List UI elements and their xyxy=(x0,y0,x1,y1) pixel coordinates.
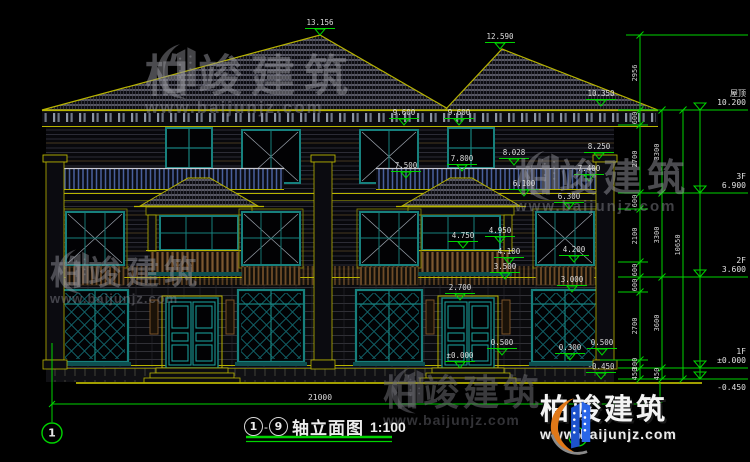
level-annotation: 8.250 xyxy=(588,142,611,151)
level-annotation: 9.600 xyxy=(393,108,416,117)
drawing-title: 1 - 9 轴立面图 1:100 xyxy=(244,414,406,439)
level-annotation: 4.750 xyxy=(452,231,475,240)
dimension-chain-value: 2700 xyxy=(631,151,639,168)
level-annotation: ±0.000 xyxy=(446,351,473,360)
level-annotation: 8.028 xyxy=(503,148,526,157)
level-annotation: 3.000 xyxy=(561,275,584,284)
dimension-chain-value: 2700 xyxy=(631,318,639,335)
dimension-chain-value: 600 xyxy=(631,195,639,208)
level-annotation: -0.450 xyxy=(587,362,614,371)
cad-elevation-drawing: 柏竣建筑 www.baijunjz.com 柏竣建筑 www.baijunjz.… xyxy=(0,0,750,462)
level-annotation: 0.300 xyxy=(559,343,582,352)
storey-level-label: 2F3.600 xyxy=(722,257,746,274)
overall-width-dimension: 21000 xyxy=(308,393,332,402)
dimension-chain-value: 600 xyxy=(631,263,639,276)
hip-roof xyxy=(42,35,658,110)
level-annotation: 13.156 xyxy=(306,18,333,27)
dimension-chain-value: 2956 xyxy=(631,64,639,81)
level-annotation: 0.500 xyxy=(591,338,614,347)
level-annotation: 3.500 xyxy=(494,262,517,271)
dimension-chain-value: 2100 xyxy=(631,227,639,244)
storey-level-label: 3F6.900 xyxy=(722,173,746,190)
title-axis-right-circle: 9 xyxy=(269,417,288,436)
title-scale: 1:100 xyxy=(370,419,406,435)
storey-level-label: 屋顶10.200 xyxy=(717,90,746,107)
eave-cornice xyxy=(42,110,658,127)
title-name: 轴立面图 xyxy=(292,414,364,439)
level-annotation: 6.300 xyxy=(558,192,581,201)
dimension-chain-value: 3600 xyxy=(653,314,661,331)
dimension-chain-value: 3300 xyxy=(653,143,661,160)
dimension-chain-value: 450 xyxy=(631,367,639,380)
storey-level-label: 1F±0.000 xyxy=(717,348,746,365)
level-annotation: 4.100 xyxy=(498,247,521,256)
level-annotation: 2.700 xyxy=(449,283,472,292)
storey-level-label: -0.450 xyxy=(717,384,746,393)
level-annotation: 10.350 xyxy=(587,89,614,98)
level-annotation: 7.800 xyxy=(451,154,474,163)
dimension-chain-value: 10650 xyxy=(674,234,682,255)
title-dash: - xyxy=(264,420,268,434)
dimension-chain-value: 450 xyxy=(653,367,661,380)
company-logo: 柏竣建筑 www.baijunjz.com xyxy=(540,394,750,444)
level-annotation: 6.100 xyxy=(513,179,536,188)
level-annotation: 7.500 xyxy=(395,161,418,170)
dimension-chain-value: 3300 xyxy=(653,227,661,244)
company-logo-icon xyxy=(540,394,600,458)
level-annotation: 4.950 xyxy=(489,226,512,235)
dimension-chain-value: 600 xyxy=(631,278,639,291)
dimension-chain-value: 600 xyxy=(631,111,639,124)
level-annotation: 4.200 xyxy=(563,245,586,254)
axis-bubble-1: 1 xyxy=(48,427,56,440)
level-annotation: 9.600 xyxy=(448,108,471,117)
title-axis-left-circle: 1 xyxy=(244,417,263,436)
level-annotation: 0.500 xyxy=(491,338,514,347)
level-annotation: 7.400 xyxy=(578,164,601,173)
level-annotation: 12.590 xyxy=(486,32,513,41)
